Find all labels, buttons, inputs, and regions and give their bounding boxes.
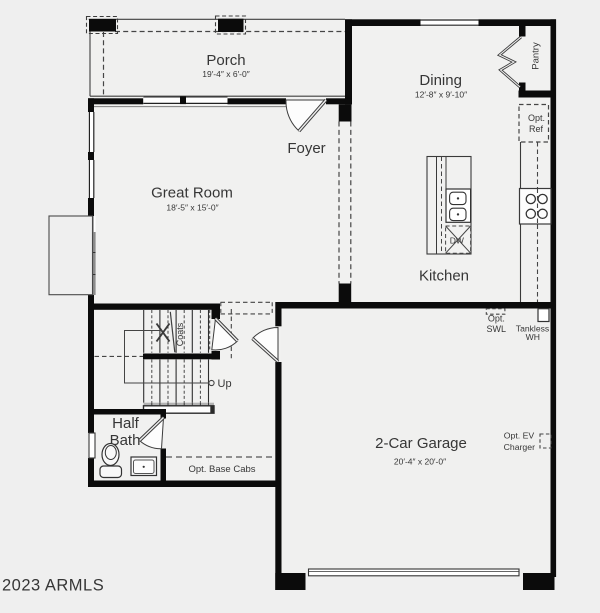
svg-text:SWL: SWL bbox=[487, 324, 507, 334]
svg-text:Pantry: Pantry bbox=[531, 42, 542, 70]
svg-text:Foyer: Foyer bbox=[287, 140, 325, 157]
svg-text:Up: Up bbox=[218, 378, 232, 390]
svg-text:WH: WH bbox=[526, 332, 540, 342]
svg-text:DW: DW bbox=[450, 236, 464, 246]
svg-text:Opt. Base Cabs: Opt. Base Cabs bbox=[188, 464, 255, 475]
svg-text:Dining: Dining bbox=[419, 72, 462, 89]
svg-text:Opt. EV: Opt. EV bbox=[504, 431, 535, 441]
svg-text:12′-8″ x 9′-10″: 12′-8″ x 9′-10″ bbox=[415, 90, 467, 100]
svg-text:2-Car Garage: 2-Car Garage bbox=[375, 435, 467, 452]
svg-text:Opt.: Opt. bbox=[488, 314, 505, 324]
svg-text:Charger: Charger bbox=[504, 442, 535, 452]
svg-text:Great Room: Great Room bbox=[151, 185, 233, 202]
svg-text:Half: Half bbox=[112, 415, 140, 432]
svg-text:Porch: Porch bbox=[206, 52, 245, 69]
svg-text:19′-4″ x 6′-0″: 19′-4″ x 6′-0″ bbox=[202, 69, 249, 79]
svg-text:Opt.: Opt. bbox=[528, 113, 545, 123]
svg-text:Coats: Coats bbox=[175, 322, 185, 346]
svg-text:20′-4″ x 20′-0″: 20′-4″ x 20′-0″ bbox=[394, 457, 446, 467]
svg-text:Ref: Ref bbox=[529, 124, 544, 134]
svg-text:18′-5″ x 15′-0″: 18′-5″ x 15′-0″ bbox=[166, 203, 218, 213]
svg-text:Kitchen: Kitchen bbox=[419, 268, 469, 285]
svg-text:2023 ARMLS: 2023 ARMLS bbox=[2, 577, 104, 595]
